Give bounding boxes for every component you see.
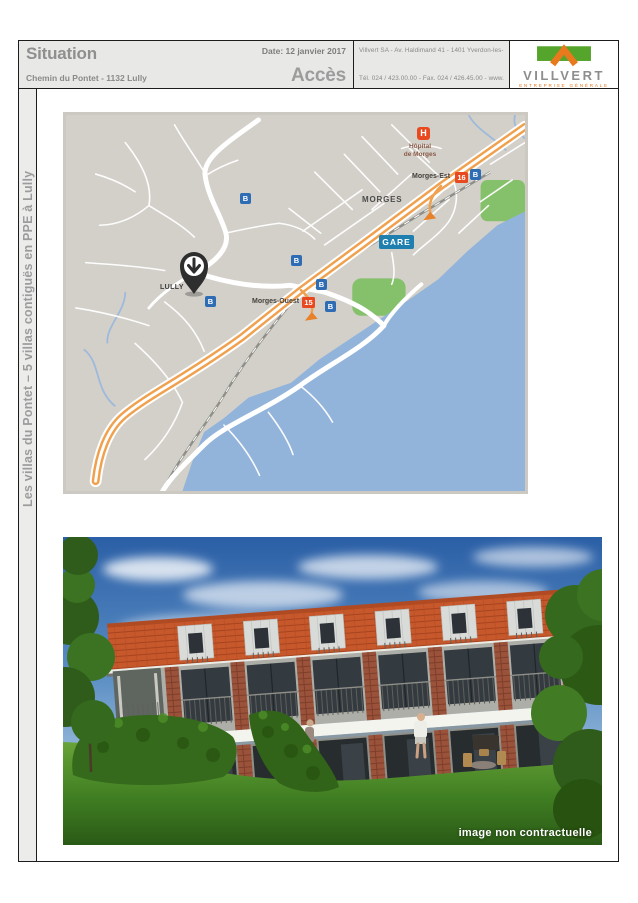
logo-name: VILLVERT: [523, 69, 605, 82]
acces-heading: Accès: [291, 66, 346, 85]
side-strip: Les villas du Pontet – 5 villas contiguë…: [19, 89, 37, 861]
disclaimer-text: image non contractuelle: [459, 827, 592, 839]
map-badge-b: B: [240, 193, 251, 204]
hospital-label: Hôpital de Morges: [388, 143, 452, 159]
map-badge-b: B: [291, 255, 302, 266]
exit-west-label: Morges-Ouest: [252, 298, 299, 305]
hospital-badge: H: [417, 127, 430, 140]
map-badge-b: B: [316, 279, 327, 290]
hospital-label-line1: Hôpital: [388, 143, 452, 151]
morges-label: MORGES: [362, 195, 402, 204]
company-address: Villvert SA - Av. Haldimand 41 - 1401 Yv…: [359, 47, 504, 54]
logo-tagline: ENTREPRISE GÉNÉRALE: [519, 83, 609, 88]
location-pin-icon: [176, 249, 212, 297]
situation-map: Hôpital de Morges H Morges-Est 16 MORGES…: [63, 112, 528, 494]
header-title-cell: Situation Chemin du Pontet - 1132 Lully …: [19, 41, 353, 88]
villvert-logo-icon: [528, 43, 600, 68]
page: Situation Chemin du Pontet - 1132 Lully …: [0, 0, 638, 903]
villa-rendering: image non contractuelle: [63, 537, 602, 845]
header-logo-cell: VILLVERT ENTREPRISE GÉNÉRALE: [509, 41, 618, 88]
page-subtitle: Chemin du Pontet - 1132 Lully: [26, 73, 147, 85]
map-badge-b: B: [325, 301, 336, 312]
document-frame: Situation Chemin du Pontet - 1132 Lully …: [18, 40, 619, 862]
hospital-label-line2: de Morges: [388, 151, 452, 159]
header: Situation Chemin du Pontet - 1132 Lully …: [19, 41, 618, 89]
document-date: Date: 12 janvier 2017: [262, 44, 346, 56]
project-vertical-title: Les villas du Pontet – 5 villas contiguë…: [21, 171, 35, 507]
exit-west-badge: 15: [302, 297, 315, 308]
rendering-graphic: [63, 537, 602, 845]
title-column: Situation Chemin du Pontet - 1132 Lully: [26, 44, 147, 85]
header-company-cell: Villvert SA - Av. Haldimand 41 - 1401 Yv…: [353, 41, 509, 88]
exit-east-badge: 16: [455, 172, 468, 183]
date-column: Date: 12 janvier 2017 Accès: [262, 44, 346, 85]
company-contact: Tél. 024 / 423.00.00 - Fax. 024 / 426.45…: [359, 75, 504, 82]
page-title: Situation: [26, 44, 147, 64]
exit-east-label: Morges-Est: [412, 173, 450, 180]
map-badge-b: B: [205, 296, 216, 307]
gare-badge: GARE: [379, 235, 414, 249]
map-badge-b: B: [470, 169, 481, 180]
